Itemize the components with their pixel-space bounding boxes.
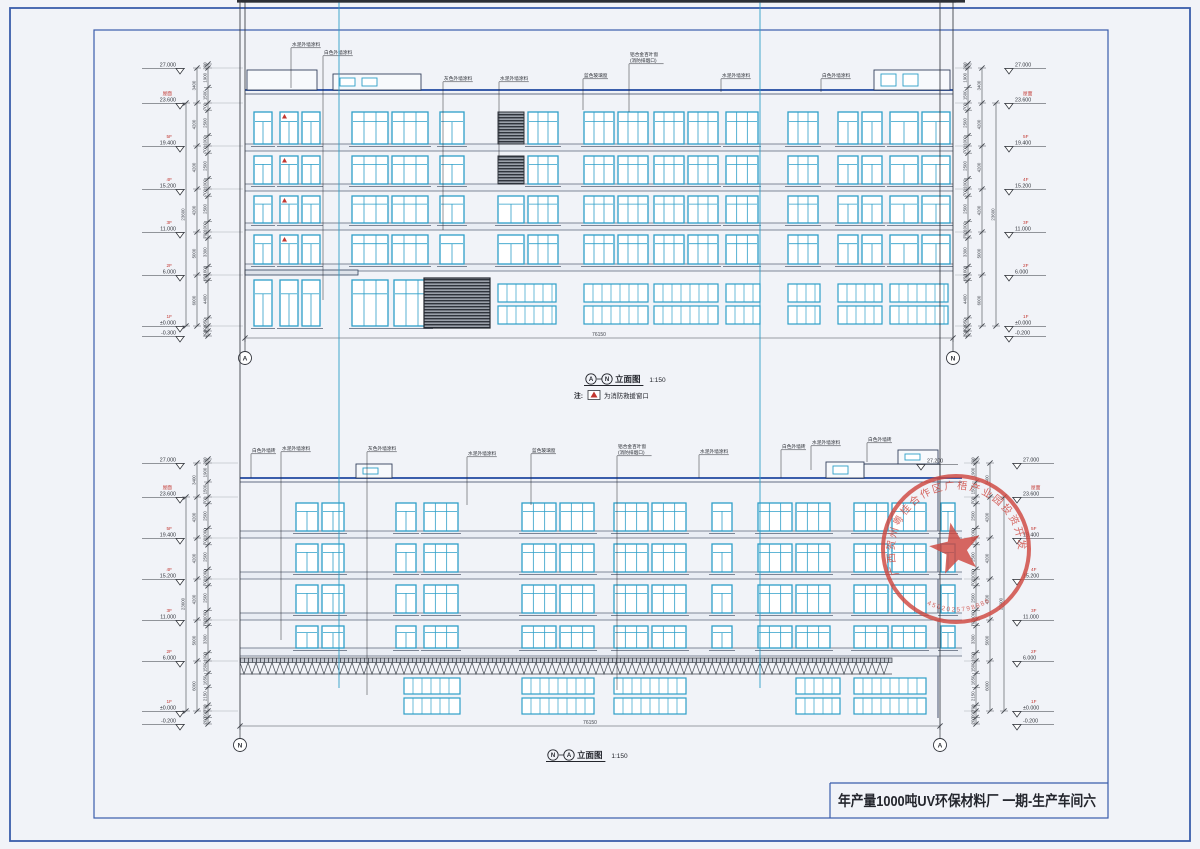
low-window [654,284,718,302]
level-value: 11.000 [1015,227,1031,233]
material-callout: (消防排烟口) [630,57,657,64]
dimension-value: 650 [962,274,967,282]
level-value: 11.000 [160,227,176,233]
window [654,112,684,144]
window [796,626,830,648]
level-value: 11.000 [160,615,176,621]
low-window [796,678,840,694]
dimension-value: 4200 [976,205,981,215]
dimension-value: 200 [962,62,967,70]
axis-letter: A [243,355,248,362]
dimension-value: 200 [970,717,975,725]
dimension-value: 200 [970,710,975,718]
dimension-value: 2500 [962,204,967,214]
low-window [404,678,460,694]
low-window [838,284,882,302]
window [726,196,758,223]
rooftop-window [362,78,377,86]
level-value: 6.000 [163,270,176,276]
dimension-value: 6000 [984,681,989,691]
level-value: 27.000 [1015,63,1031,69]
floor-slab [245,223,953,230]
window [392,156,428,184]
window [352,112,388,144]
window [654,235,684,264]
dimension-value: 1900 [202,72,207,82]
louver-panel [498,156,524,184]
floor-label: 2F [1031,649,1037,654]
dimension-value: 2500 [202,161,207,171]
drawing-scale: 1:150 [649,377,666,384]
window [654,196,684,223]
window [614,626,648,648]
note-text: 为消防救援窗口 [604,391,649,400]
window [758,544,792,572]
dimension-value: 6000 [191,295,196,305]
dimension-value: 700 [202,537,207,545]
total-width-value: 76150 [592,332,606,338]
axis-letter: N [951,355,956,362]
material-callout: 水泥外墙涂料 [722,72,750,79]
dimension-value: 700 [962,102,967,110]
dimension-value: 700 [970,704,975,712]
level-value: 6.000 [1023,656,1036,662]
floor-label: 3F [1023,220,1029,225]
window [424,626,458,648]
dimension-value: 700 [202,102,207,110]
dimension-value: 200 [962,329,967,337]
axis-letter: A [567,753,572,759]
dimension-value: 4200 [191,162,196,172]
window [854,626,888,648]
level-value: 27.000 [160,63,176,69]
level-value: ±0.000 [160,321,176,327]
window [392,235,428,264]
drawing-title: 立面图 [615,374,641,384]
window [522,626,556,648]
dimension-value: 1000 [202,178,207,188]
ground-line [237,0,965,3]
floor-label: 2F [167,649,173,654]
window [726,235,758,264]
level-value: 27.000 [1023,458,1039,464]
low-window [404,698,460,714]
rooftop-window [363,468,378,474]
louver-panel [498,112,524,144]
level-value: 15.200 [160,574,176,580]
dimension-value: 1500 [202,90,207,100]
dimension-value: 1500 [970,662,975,672]
annex-roof [245,270,358,275]
dimension-value: 6000 [976,295,981,305]
dimension-value: 4400 [962,294,967,304]
low-window [726,284,760,302]
window [688,156,718,184]
material-callout: 白色外墙涂料 [822,72,850,79]
dimension-value: 2150 [970,691,975,701]
dimension-value: 5000 [191,248,196,258]
material-callout: 水泥外墙涂料 [500,75,528,82]
dimension-value: 1000 [962,221,967,231]
floor-slab [240,613,962,620]
level-value: 23.600 [160,492,176,498]
total-width-value: 76150 [583,720,597,726]
floor-label: 5F [1023,134,1029,139]
window [892,626,926,648]
level-value: -0.200 [1015,331,1030,337]
material-callout: (消防排烟口) [618,449,645,456]
floor-label: 1F [167,699,173,704]
material-callout: 白色外墙砖 [782,443,806,450]
dimension-value: 1900 [202,467,207,477]
low-window [838,306,882,324]
window [652,585,686,613]
floor-label: 3F [167,220,173,225]
window [560,544,594,572]
dimension-value: 700 [202,188,207,196]
drawing-title: 立面图 [577,750,603,760]
window [758,503,792,531]
level-value: 6.000 [163,656,176,662]
floor-label: 3F [1031,608,1037,613]
dimension-value: 700 [202,704,207,712]
dimension-value: 2500 [202,204,207,214]
level-value: 27.000 [160,458,176,464]
dimension-value: 4200 [191,119,196,129]
level-value: 11.000 [1023,615,1039,621]
roller-shutter-door [424,278,490,328]
rooftop-window [903,74,918,86]
dimension-value: 950 [962,318,967,326]
material-callout: 白色外墙砖 [252,447,276,454]
window [352,156,388,184]
material-callout: 蓝色玻璃窗 [532,447,556,454]
window [726,112,758,144]
floor-label: 5F [167,134,173,139]
dimension-value: 700 [202,145,207,153]
dimension-value: 1000 [202,610,207,620]
dimension-value: 4200 [984,553,989,563]
window [788,235,818,264]
window [528,235,558,264]
drawing-sheet: 27.00027.00023.600屋面23.600屋面19.4005F19.4… [0,0,1200,849]
window [560,626,594,648]
window [654,156,684,184]
window [424,503,458,531]
level-value: 23.600 [1023,492,1039,498]
axis-letter: N [238,742,243,749]
window [522,503,556,531]
dimension-value: 23600 [990,208,995,221]
dimension-value: 650 [202,274,207,282]
dimension-value: 5000 [984,635,989,645]
material-callout: 白色外墙涂料 [324,49,352,56]
dimension-value: 950 [202,318,207,326]
dimension-value: 1500 [962,90,967,100]
dimension-value: 4200 [191,512,196,522]
floor-slab [240,572,962,579]
window [584,112,614,144]
level-value: ±0.000 [1015,321,1031,327]
dimension-value: 1500 [202,662,207,672]
dimension-value: 1000 [962,135,967,145]
window [796,503,830,531]
low-window [654,306,718,324]
level-value: 27.200 [927,459,943,465]
window [788,156,818,184]
dimension-value: 2500 [202,118,207,128]
floor-label: 5F [1031,526,1037,531]
window [854,503,888,531]
material-callout: 铝合金百叶窗 [630,51,658,58]
window [688,196,718,223]
dimension-value: 200 [202,62,207,70]
dimension-value: 3300 [970,634,975,644]
window [528,156,558,184]
dimension-value: 1900 [962,72,967,82]
window [652,544,686,572]
material-callout: 水泥外墙涂料 [282,445,310,452]
dimension-value: 1000 [970,569,975,579]
dimension-value: 1650 [970,675,975,685]
window [788,112,818,144]
window [758,626,792,648]
dimension-value: 1000 [962,265,967,275]
dimension-value: 3300 [962,247,967,257]
dimension-value: 200 [202,710,207,718]
dimension-value: 3400 [191,80,196,90]
drawing-scale: 1:150 [611,753,628,760]
floor-slab [245,144,953,151]
level-value: 19.400 [160,533,176,539]
dimension-value: 2500 [202,593,207,603]
floor-slab [240,648,962,656]
note-prefix: 注: [574,391,583,400]
window [854,585,888,613]
dimension-value: 200 [970,457,975,465]
window [788,196,818,223]
dimension-value: 3400 [976,80,981,90]
dimension-value: 1000 [202,135,207,145]
low-window [726,306,760,324]
dimension-value: 1000 [202,221,207,231]
dimension-value: 4400 [202,294,207,304]
floor-label: 1F [1023,314,1029,319]
dimension-value: 700 [970,578,975,586]
window [618,112,648,144]
dimension-value: 700 [202,578,207,586]
window [352,235,388,264]
dimension-value: 1000 [202,651,207,661]
material-callout: 灰色外墙涂料 [368,445,396,452]
dimension-value: 1000 [970,651,975,661]
dimension-value: 700 [202,496,207,504]
window [758,585,792,613]
dimension-value: 200 [202,329,207,337]
window [614,503,648,531]
dimension-value: 1650 [202,675,207,685]
axis-letter: N [605,377,609,383]
material-callout: 水泥外墙涂料 [812,439,840,446]
elevation-drawing-canvas: 27.00027.00023.600屋面23.600屋面19.4005F19.4… [0,0,1200,849]
dimension-value: 4200 [191,553,196,563]
window [584,196,614,223]
rooftop-window [833,466,848,474]
window [560,503,594,531]
window [618,156,648,184]
floor-label: 3F [167,608,173,613]
window [614,585,648,613]
floor-label: 4F [1031,567,1037,572]
dimension-value: 4200 [976,162,981,172]
dimension-value: 5000 [191,635,196,645]
dimension-value: 700 [202,619,207,627]
rooftop-window [340,78,355,86]
window [528,196,558,223]
window [796,585,830,613]
dimension-value: 2500 [970,593,975,603]
window [726,156,758,184]
window [584,235,614,264]
dimension-value: 1500 [202,484,207,494]
dimension-value: 2500 [202,511,207,521]
floor-label: 5F [167,526,173,531]
dimension-value: 3300 [202,634,207,644]
material-callout: 蓝色玻璃窗 [584,72,608,79]
axis-letter: A [589,377,594,383]
dimension-value: 1000 [962,178,967,188]
dimension-value: 4200 [191,594,196,604]
window [528,112,558,144]
window [796,544,830,572]
floor-slab [245,184,953,191]
level-value: 19.400 [160,141,176,147]
dimension-value: 200 [202,457,207,465]
level-value: 15.200 [1015,184,1031,190]
dimension-value: 700 [202,231,207,239]
low-window [584,284,648,302]
level-value: 23.600 [160,98,176,104]
dimension-value: 5000 [976,248,981,258]
level-value: ±0.000 [160,706,176,712]
level-value: -0.300 [161,331,176,337]
dimension-value: 2500 [962,118,967,128]
floor-label: 1F [167,314,173,319]
window [392,196,428,223]
window [652,626,686,648]
low-window [584,306,648,324]
dimension-value: 3400 [191,475,196,485]
dimension-value: 200 [202,717,207,725]
window [618,196,648,223]
level-value: 23.600 [1015,98,1031,104]
rooftop-window [905,454,920,460]
dimension-value: 700 [970,496,975,504]
material-callout: 铝合金百叶窗 [618,443,646,450]
level-value: 15.200 [160,184,176,190]
dimension-value: 700 [962,231,967,239]
dimension-value: 2500 [970,511,975,521]
window [424,544,458,572]
dimension-value: 6000 [191,681,196,691]
level-value: ±0.000 [1023,706,1039,712]
floor-label: 2F [167,263,173,268]
level-value: -0.200 [161,719,176,725]
axis-letter: A [938,742,943,749]
window [614,544,648,572]
dimension-value: 2500 [962,161,967,171]
window [688,235,718,264]
window [618,235,648,264]
dimension-value: 700 [962,145,967,153]
dimension-value: 1000 [202,528,207,538]
material-callout: 水泥外墙涂料 [700,448,728,455]
window [688,112,718,144]
floor-label: 4F [167,567,173,572]
material-callout: 水泥外墙涂料 [292,41,320,48]
dimension-value: 23600 [180,208,185,221]
material-callout: 灰色外墙涂料 [444,75,472,82]
level-value: 6.000 [1015,270,1028,276]
axis-letter: N [551,753,555,759]
window [560,585,594,613]
dimension-value: 2500 [202,552,207,562]
rooftop-structure [247,70,317,90]
level-value: 19.400 [1015,141,1031,147]
floor-label: 4F [167,177,173,182]
dimension-value: 23600 [180,597,185,610]
window [522,585,556,613]
dimension-value: 700 [962,188,967,196]
window [352,196,388,223]
window [584,156,614,184]
window [424,585,458,613]
rooftop-window [881,74,896,86]
material-callout: 白色外墙砖 [868,436,892,443]
floor-label: 4F [1023,177,1029,182]
material-callout: 水泥外墙涂料 [468,450,496,457]
dimension-value: 2150 [202,691,207,701]
window [652,503,686,531]
dimension-value: 4200 [976,119,981,129]
floor-label: 2F [1023,263,1029,268]
dimension-value: 1000 [202,569,207,579]
level-value: -0.200 [1023,719,1038,725]
floor-label: 1F [1031,699,1037,704]
window [392,112,428,144]
dimension-value: 4200 [984,512,989,522]
dimension-value: 4200 [191,205,196,215]
floor-slab [240,531,962,538]
canopy-deck [240,658,892,663]
project-title: 年产量1000吨UV环保材料厂 一期-生产车间六 [838,792,1096,810]
dimension-value: 3300 [202,247,207,257]
window [522,544,556,572]
dimension-value: 1000 [202,265,207,275]
low-window [796,698,840,714]
window [352,280,388,326]
